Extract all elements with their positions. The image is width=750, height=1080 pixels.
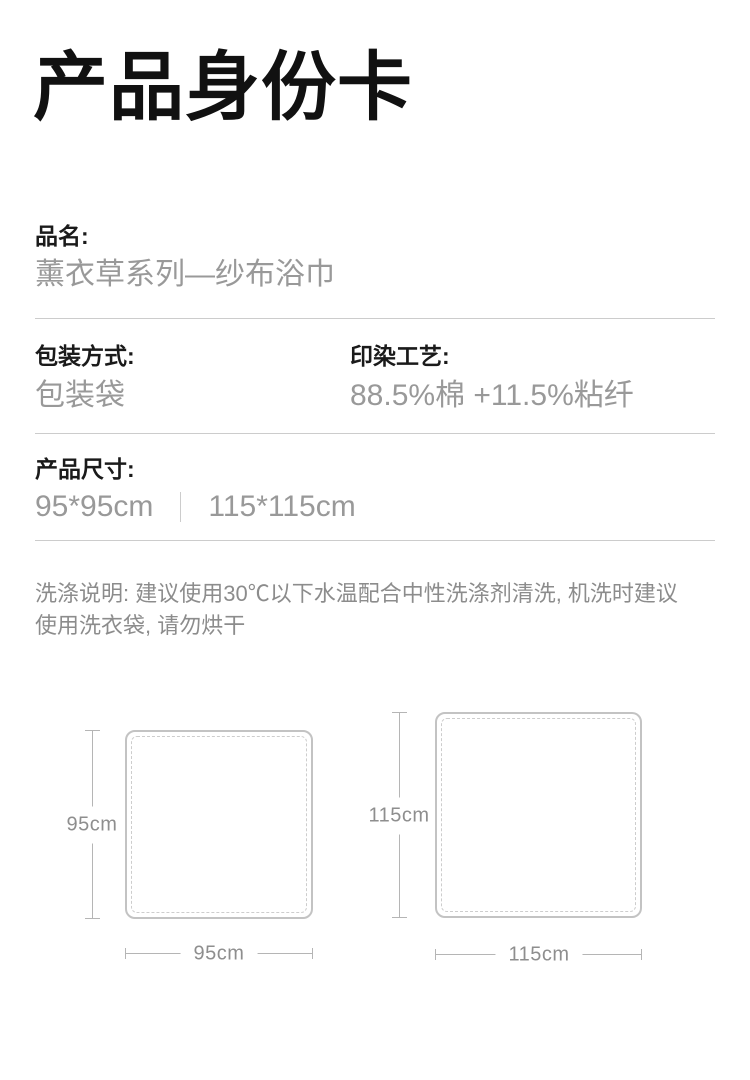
size-separator: [180, 492, 181, 522]
product-identity-card: 产品身份卡 品名: 薰衣草系列—纱布浴巾 包装方式: 包装袋 印染工艺: 88.…: [0, 0, 750, 1080]
height-dimension-label-115: 115cm: [367, 798, 430, 835]
care-instructions: 洗涤说明: 建议使用30℃以下水温配合中性洗涤剂清洗, 机洗时建议 使用洗衣袋,…: [35, 578, 678, 642]
packaging-method-value: 包装袋: [35, 378, 125, 414]
size-value-small: 95*95cm: [35, 490, 153, 524]
packaging-method-label: 包装方式:: [35, 343, 135, 371]
section-divider: [35, 318, 715, 319]
care-instructions-line2: 使用洗衣袋, 请勿烘干: [35, 610, 678, 642]
towel-outline-115: [435, 712, 642, 918]
dyeing-process-label: 印染工艺:: [350, 343, 450, 371]
product-size-label: 产品尺寸:: [35, 456, 135, 484]
height-dimension-label-95: 95cm: [66, 807, 119, 844]
care-instructions-line1: 洗涤说明: 建议使用30℃以下水温配合中性洗涤剂清洗, 机洗时建议: [35, 578, 678, 610]
dyeing-process-value: 88.5%棉 +11.5%粘纤: [350, 378, 634, 414]
product-size-values: 95*95cm 115*115cm: [35, 490, 356, 524]
towel-outline-95: [125, 730, 313, 919]
page-title: 产品身份卡: [33, 44, 413, 130]
product-name-value: 薰衣草系列—纱布浴巾: [35, 257, 335, 293]
width-dimension-label-115: 115cm: [495, 944, 582, 967]
width-dimension-label-95: 95cm: [181, 943, 258, 966]
product-name-label: 品名:: [35, 223, 89, 251]
size-value-large: 115*115cm: [208, 490, 355, 524]
section-divider: [35, 433, 715, 434]
section-divider: [35, 540, 715, 541]
